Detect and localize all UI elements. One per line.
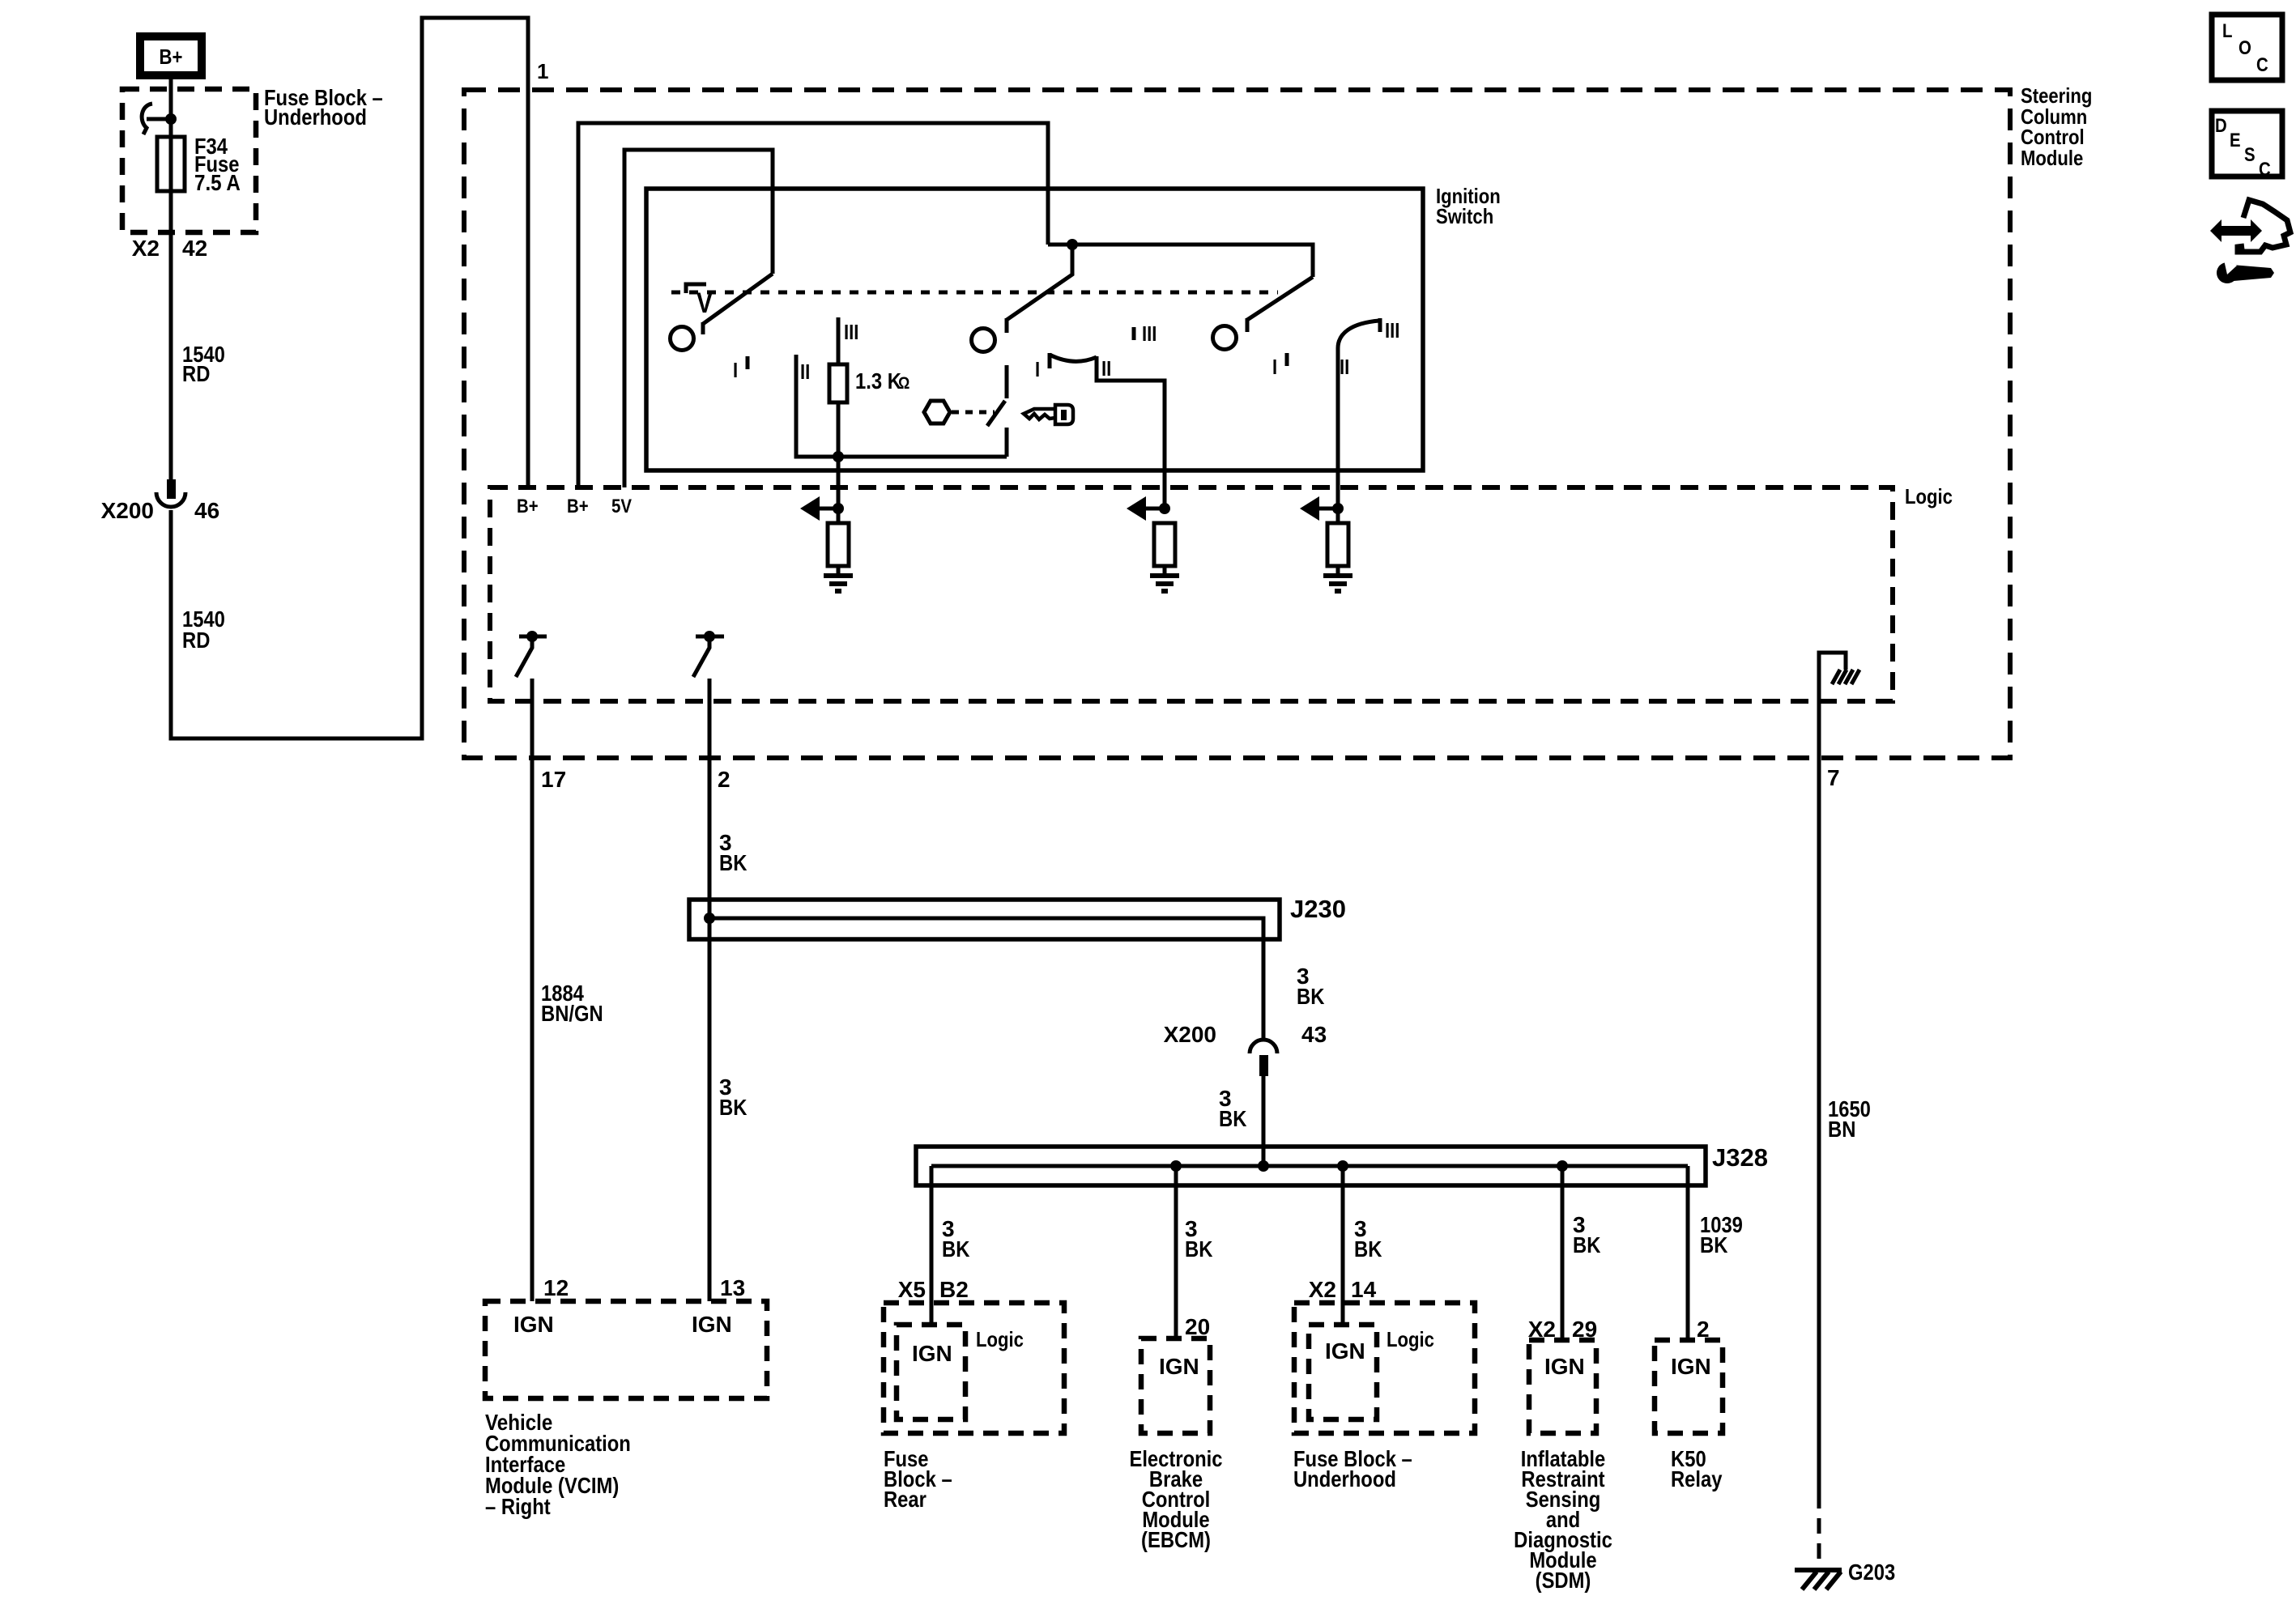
svg-text:Ω: Ω bbox=[898, 374, 909, 393]
svg-text:43: 43 bbox=[1301, 1022, 1327, 1047]
svg-text:RD: RD bbox=[182, 361, 210, 386]
svg-text:B2: B2 bbox=[939, 1277, 969, 1302]
svg-text:X200: X200 bbox=[101, 498, 154, 523]
svg-text:1: 1 bbox=[537, 59, 548, 83]
svg-text:II: II bbox=[800, 360, 810, 384]
svg-text:7: 7 bbox=[1827, 765, 1840, 790]
svg-text:12: 12 bbox=[543, 1275, 569, 1300]
svg-text:II: II bbox=[1101, 356, 1111, 381]
svg-text:X2: X2 bbox=[1528, 1317, 1556, 1342]
svg-text:BK: BK bbox=[1185, 1236, 1212, 1262]
svg-text:Rear: Rear bbox=[884, 1487, 926, 1512]
svg-text:BK: BK bbox=[1297, 984, 1324, 1009]
svg-text:(SDM): (SDM) bbox=[1536, 1568, 1591, 1593]
svg-text:BK: BK bbox=[719, 850, 747, 875]
svg-text:13: 13 bbox=[720, 1275, 745, 1300]
svg-text:B+: B+ bbox=[160, 45, 183, 69]
svg-text:I: I bbox=[1035, 357, 1040, 381]
svg-text:5V: 5V bbox=[611, 496, 632, 517]
svg-text:BK: BK bbox=[1573, 1232, 1600, 1257]
svg-text:BK: BK bbox=[1219, 1106, 1246, 1131]
svg-text:14: 14 bbox=[1351, 1277, 1377, 1302]
svg-text:X2: X2 bbox=[132, 236, 160, 261]
svg-text:46: 46 bbox=[194, 498, 219, 523]
svg-text:1.3 K: 1.3 K bbox=[855, 368, 901, 394]
svg-text:IGN: IGN bbox=[1544, 1354, 1585, 1379]
svg-text:D: D bbox=[2215, 115, 2227, 137]
svg-text:B+: B+ bbox=[517, 496, 539, 517]
svg-text:IGN: IGN bbox=[1671, 1354, 1711, 1379]
svg-text:X200: X200 bbox=[1164, 1022, 1216, 1047]
svg-text:C: C bbox=[2259, 159, 2271, 181]
svg-text:BK: BK bbox=[1700, 1232, 1727, 1257]
svg-text:– Right: – Right bbox=[485, 1494, 551, 1519]
svg-text:Logic: Logic bbox=[1387, 1327, 1434, 1351]
svg-text:Relay: Relay bbox=[1671, 1466, 1723, 1491]
svg-text:J328: J328 bbox=[1712, 1143, 1768, 1172]
svg-text:C: C bbox=[2256, 54, 2268, 76]
svg-text:L: L bbox=[2222, 20, 2233, 42]
svg-text:2: 2 bbox=[1697, 1317, 1710, 1342]
svg-text:7.5 A: 7.5 A bbox=[194, 170, 241, 195]
svg-text:IGN: IGN bbox=[1325, 1338, 1365, 1364]
svg-text:29: 29 bbox=[1572, 1317, 1597, 1342]
svg-text:BK: BK bbox=[1354, 1236, 1382, 1262]
svg-text:S: S bbox=[2244, 144, 2256, 166]
svg-text:I: I bbox=[1272, 355, 1277, 379]
svg-text:O: O bbox=[2238, 37, 2251, 59]
svg-text:III: III bbox=[1385, 318, 1399, 343]
svg-text:V: V bbox=[696, 287, 713, 319]
svg-text:17: 17 bbox=[541, 767, 566, 792]
svg-text:BK: BK bbox=[942, 1236, 969, 1262]
svg-text:BK: BK bbox=[719, 1095, 747, 1120]
svg-text:E: E bbox=[2230, 130, 2241, 151]
svg-text:Module: Module bbox=[2021, 146, 2083, 170]
svg-text:(EBCM): (EBCM) bbox=[1141, 1527, 1211, 1552]
svg-text:J230: J230 bbox=[1290, 895, 1346, 923]
svg-text:Underhood: Underhood bbox=[1293, 1466, 1396, 1491]
svg-text:G203: G203 bbox=[1848, 1560, 1895, 1585]
svg-text:IGN: IGN bbox=[513, 1312, 554, 1337]
svg-text:I: I bbox=[733, 358, 738, 382]
svg-text:IGN: IGN bbox=[692, 1312, 732, 1337]
svg-text:BN: BN bbox=[1828, 1117, 1855, 1142]
svg-text:42: 42 bbox=[182, 236, 207, 261]
svg-text:Logic: Logic bbox=[1905, 484, 1953, 509]
svg-text:2: 2 bbox=[718, 767, 731, 792]
svg-text:Switch: Switch bbox=[1436, 204, 1493, 228]
svg-text:Underhood: Underhood bbox=[264, 104, 367, 130]
svg-text:IGN: IGN bbox=[1159, 1354, 1199, 1379]
svg-text:B+: B+ bbox=[567, 496, 589, 517]
svg-text:III: III bbox=[1142, 321, 1157, 346]
svg-text:20: 20 bbox=[1185, 1314, 1210, 1339]
svg-text:III: III bbox=[844, 320, 858, 344]
svg-text:X2: X2 bbox=[1309, 1277, 1336, 1302]
svg-text:BN/GN: BN/GN bbox=[541, 1001, 603, 1026]
svg-text:II: II bbox=[1340, 355, 1349, 379]
svg-text:IGN: IGN bbox=[912, 1341, 952, 1366]
svg-text:RD: RD bbox=[182, 628, 210, 653]
svg-text:X5: X5 bbox=[898, 1277, 926, 1302]
svg-text:Logic: Logic bbox=[976, 1327, 1024, 1351]
